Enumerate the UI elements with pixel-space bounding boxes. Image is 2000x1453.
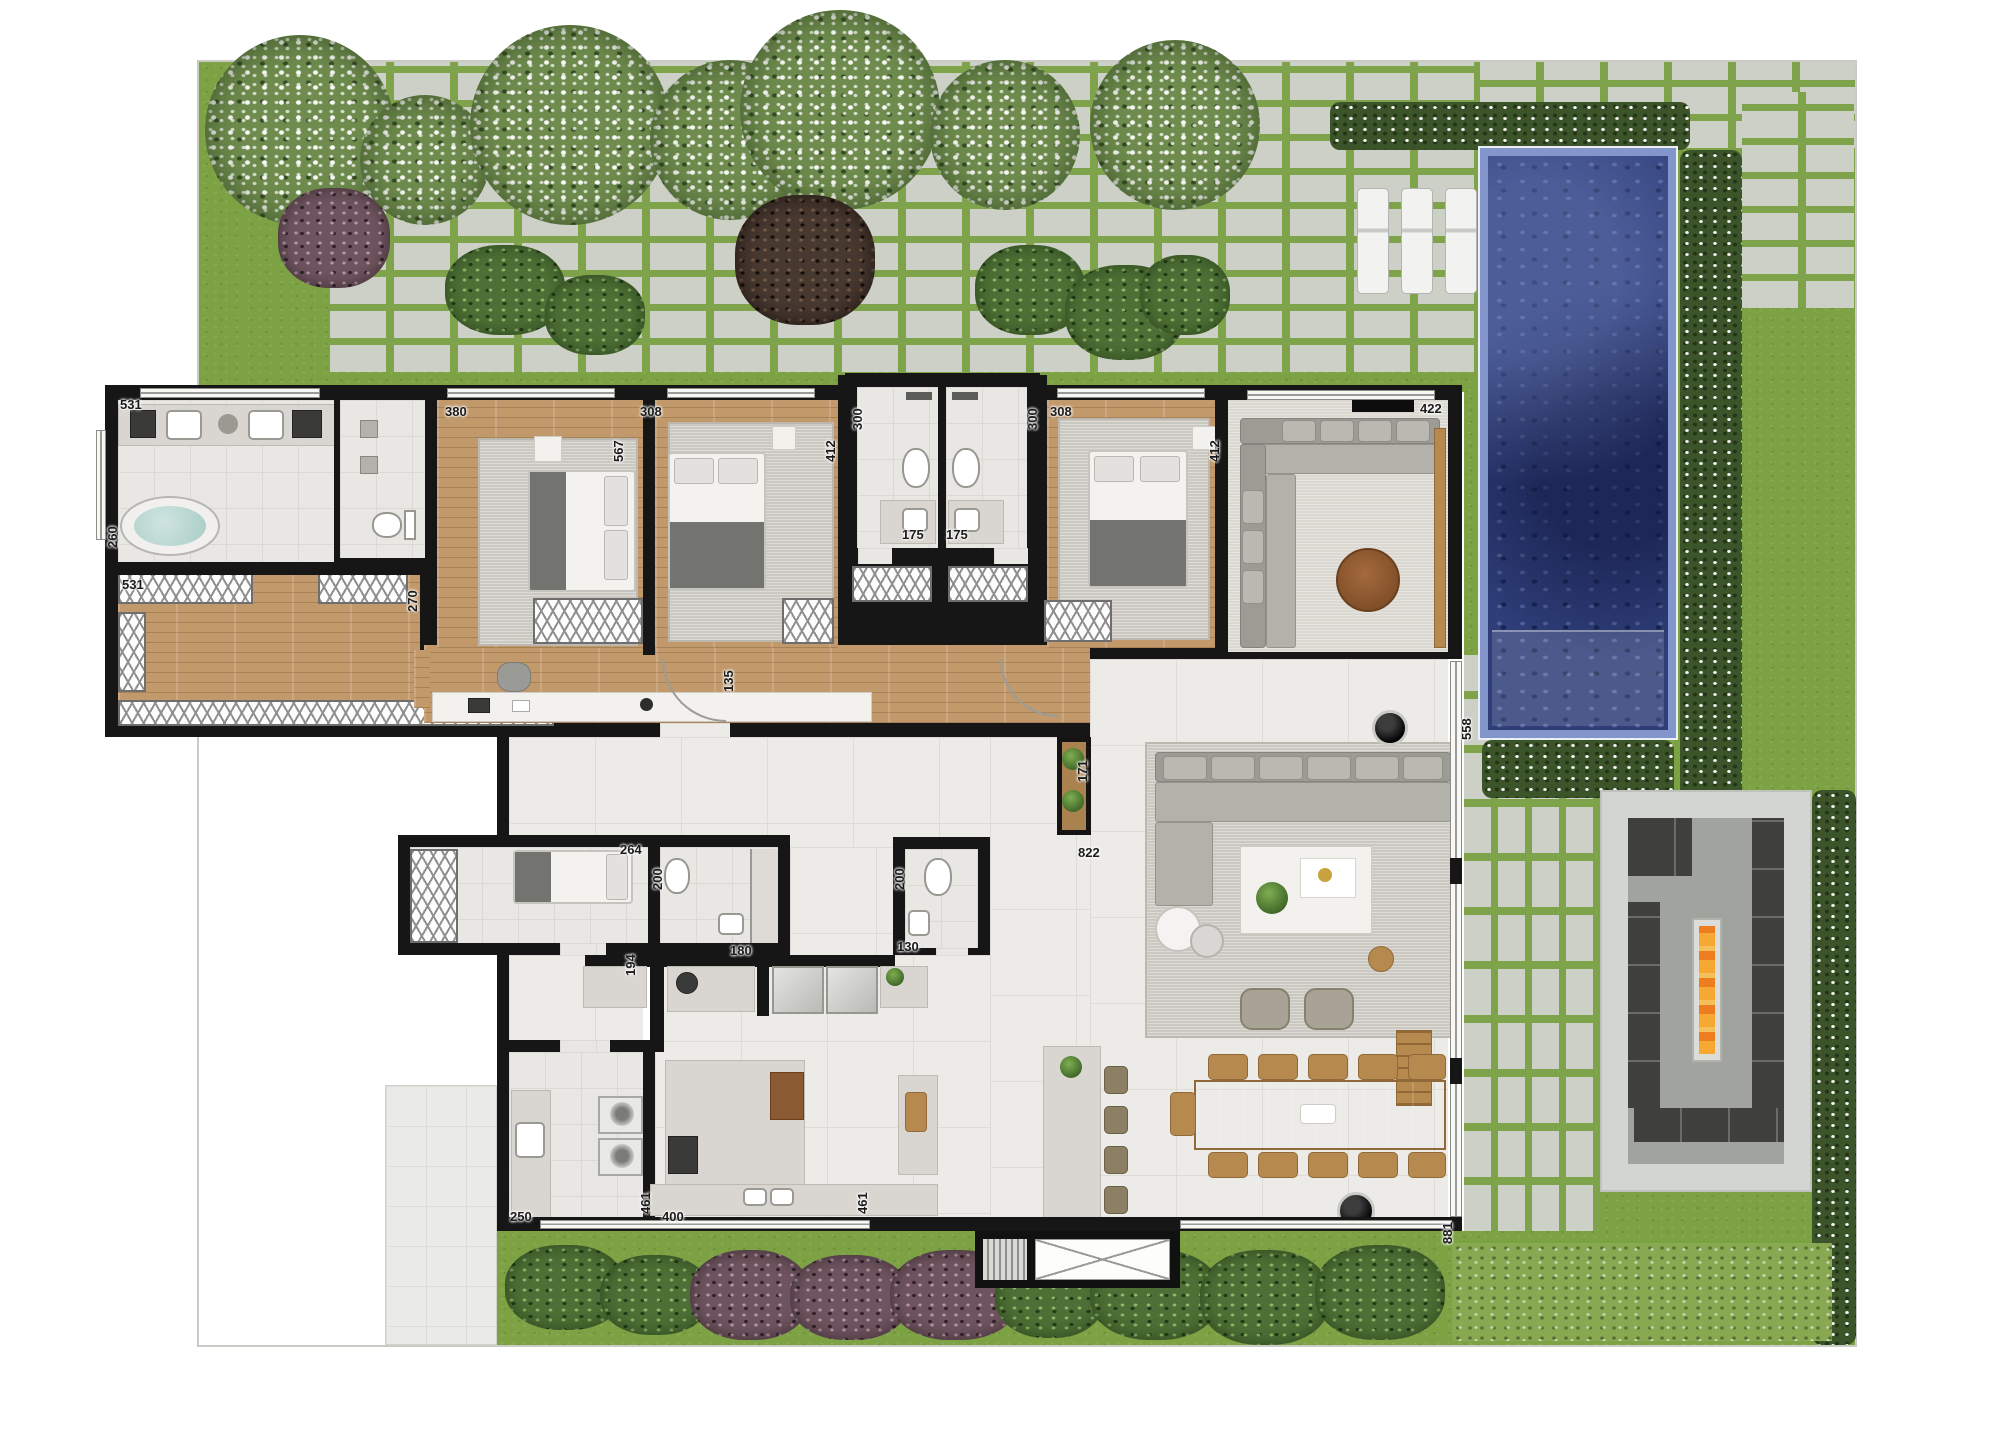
dimension-label: 412 <box>824 440 837 462</box>
dimension-label: 531 <box>122 578 144 591</box>
dimension-label: 567 <box>612 440 625 462</box>
dimension-label: 180 <box>730 944 752 957</box>
dimension-label: 171 <box>1076 760 1089 782</box>
dimension-label: 200 <box>651 868 664 890</box>
dimension-label: 380 <box>445 405 467 418</box>
dimension-labels-layer: 5312605312703805673084123003001751753084… <box>0 0 2000 1453</box>
dimension-label: 822 <box>1078 846 1100 859</box>
site-plan: 5312605312703805673084123003001751753084… <box>0 0 2000 1453</box>
dimension-label: 175 <box>902 528 924 541</box>
dimension-label: 130 <box>897 940 919 953</box>
dimension-label: 194 <box>624 954 637 976</box>
dimension-label: 175 <box>946 528 968 541</box>
dimension-label: 461 <box>639 1192 652 1214</box>
dimension-label: 270 <box>406 590 419 612</box>
dimension-label: 264 <box>620 843 642 856</box>
dimension-label: 300 <box>851 408 864 430</box>
dimension-label: 135 <box>722 670 735 692</box>
dimension-label: 300 <box>1026 408 1039 430</box>
dimension-label: 200 <box>893 868 906 890</box>
dimension-label: 308 <box>640 405 662 418</box>
dimension-label: 881 <box>1441 1222 1454 1244</box>
dimension-label: 308 <box>1050 405 1072 418</box>
dimension-label: 531 <box>120 398 142 411</box>
dimension-label: 422 <box>1420 402 1442 415</box>
dimension-label: 400 <box>662 1210 684 1223</box>
floor-plan-canvas: { "plan": { "canvas": {"width": 2000, "h… <box>0 0 2000 1453</box>
dimension-label: 260 <box>106 526 119 548</box>
dimension-label: 558 <box>1460 718 1473 740</box>
dimension-label: 250 <box>510 1210 532 1223</box>
dimension-label: 412 <box>1208 440 1221 462</box>
dimension-label: 461 <box>856 1192 869 1214</box>
